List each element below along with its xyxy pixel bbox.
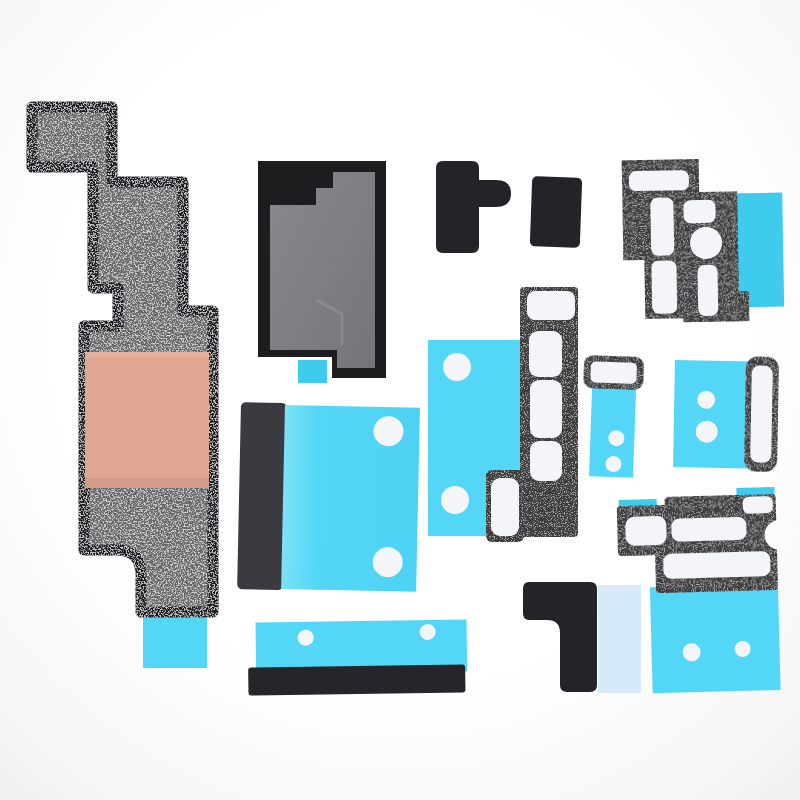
adhesive-cutout — [750, 365, 773, 462]
part-l-shaped-cover — [523, 582, 641, 693]
part-bottom-adhesive-strip — [248, 619, 468, 695]
part-foam-gasket-lower-right — [616, 487, 798, 695]
adhesive-cutout — [590, 361, 637, 384]
part-foam-gasket-mid — [428, 287, 578, 542]
product-photo — [0, 0, 800, 800]
part-gasket-with-tail — [580, 355, 644, 478]
black-edge-bar — [248, 664, 465, 695]
liner-sheet — [650, 584, 781, 693]
copper-highlight — [85, 352, 209, 358]
liner-hole — [443, 353, 471, 381]
copper-foil — [85, 352, 209, 488]
liner-tab — [298, 360, 327, 383]
part-foam-gasket-upper-right — [622, 158, 785, 324]
part-graphite-heatsink-pad — [32, 107, 213, 668]
pale-liner — [598, 585, 641, 693]
black-edge-bar — [237, 402, 287, 590]
part-connector-cover-small — [530, 176, 582, 248]
liner-sheet — [673, 360, 751, 468]
copper-shade — [85, 478, 209, 488]
part-shield-insulator-card — [258, 161, 386, 383]
product-photo-canvas — [0, 0, 800, 800]
part-connector-cover-tab — [436, 161, 511, 253]
l-cover-body — [523, 582, 597, 692]
liner-hole — [441, 486, 469, 514]
part-adhesive-pad-right — [673, 355, 779, 472]
part-adhesive-pad-left-center — [237, 402, 420, 593]
